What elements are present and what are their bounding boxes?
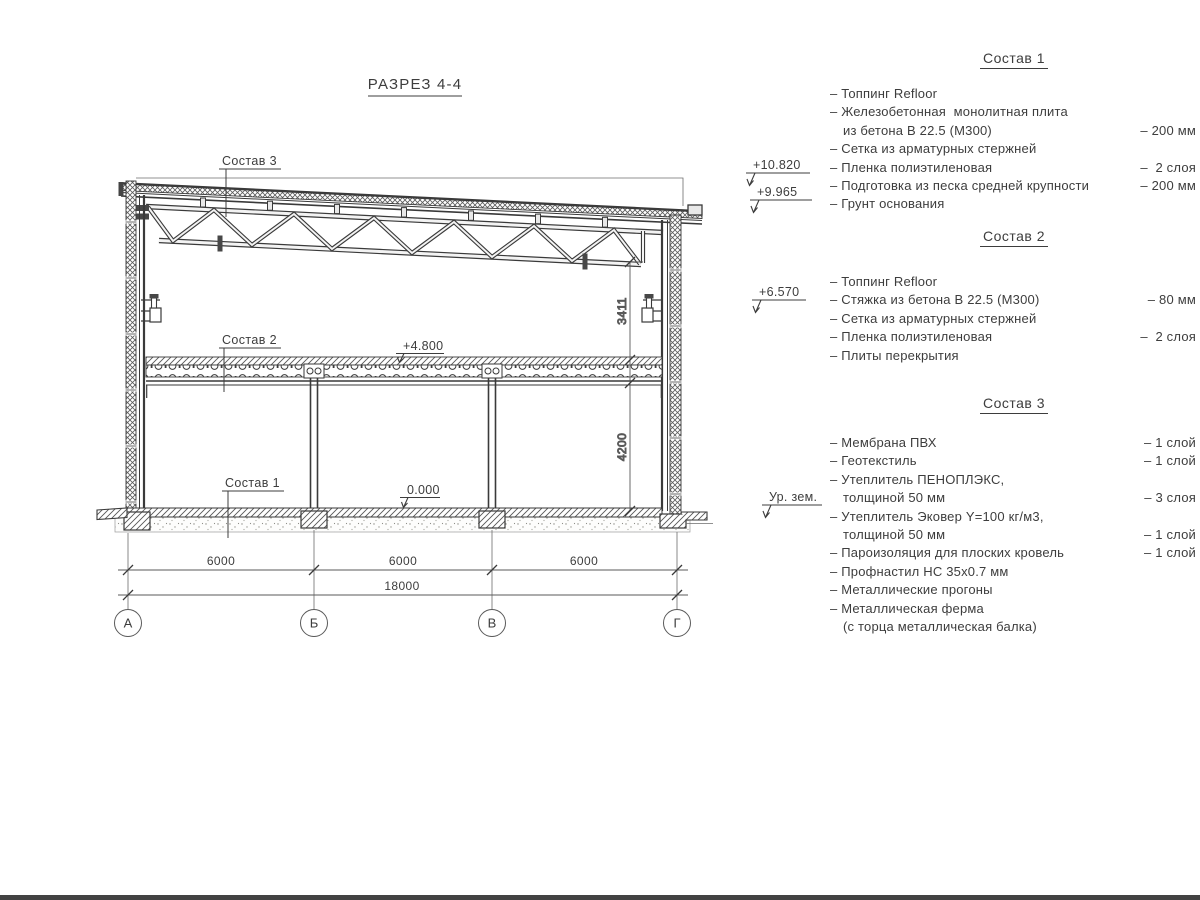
foundation-g [660, 514, 686, 528]
axis-label-b: Б [310, 616, 319, 631]
dim-total: 18000 [384, 579, 419, 593]
roof-right-end-beam [688, 205, 702, 215]
label-sostav-2-text: Состав 2 [222, 333, 277, 347]
item-text: – Топпинг Refloor [830, 273, 937, 291]
legend-item: – Геотекстиль– 1 слой [830, 452, 1198, 470]
window-bottom-edge [0, 895, 1200, 900]
hollow-core-slab-band [146, 365, 662, 377]
column-axis-v [482, 364, 502, 512]
legend-item: – Плиты перекрытия [830, 347, 1198, 365]
right-wall-panel [670, 215, 681, 518]
elevation-zero: 0.000 [400, 483, 440, 508]
item-text: – Топпинг Refloor [830, 85, 937, 103]
item-text: – Металлическая ферма [830, 600, 984, 618]
item-text: толщиной 50 мм [830, 526, 945, 544]
elevation-bracket: +6.570 [752, 285, 806, 313]
dim-span-1: 6000 [207, 554, 235, 568]
item-value: – 1 слой [1144, 544, 1198, 562]
legend-item: – Профнастил НС 35х0.7 мм [830, 563, 1198, 581]
sand-layer [115, 517, 690, 532]
item-text: – Грунт основания [830, 195, 945, 213]
left-apron [97, 508, 127, 520]
legend-item: (с торца металлическая балка) [830, 618, 1198, 636]
item-text: толщиной 50 мм [830, 489, 945, 507]
item-text: – Сетка из арматурных стержней [830, 140, 1036, 158]
legend-heading-2: Состав 2 [830, 228, 1198, 247]
item-text: – Пароизоляция для плоских кровель [830, 544, 1064, 562]
dim-span-2: 6000 [389, 554, 417, 568]
legend-heading-1: Состав 1 [830, 50, 1198, 69]
dimension-extension-lines [128, 530, 677, 609]
right-crane-bracket [642, 294, 662, 322]
drawing-sheet: РАЗРЕЗ 4-4 [0, 0, 1200, 900]
elevation-floor-text: +4.800 [403, 339, 443, 353]
legend-section-1: Состав 1 – Топпинг Refloor – Железобетон… [830, 50, 1198, 214]
axis-label-a: А [124, 616, 133, 631]
legend-item: – Топпинг Refloor [830, 85, 1198, 103]
legend-item: – Топпинг Refloor [830, 273, 1198, 291]
legend-item: – Стяжка из бетона В 22.5 (М300)– 80 мм [830, 291, 1198, 309]
item-value: – 1 слой [1144, 452, 1198, 470]
elevation-zero-text: 0.000 [407, 483, 440, 497]
interior-columns [304, 364, 502, 512]
dim-floor-height: 4200 [615, 433, 629, 461]
legend-heading-3: Состав 3 [830, 395, 1198, 414]
legend-section-3: Состав 3 – Мембрана ПВХ– 1 слой – Геотек… [830, 395, 1198, 636]
item-text: – Утеплитель Эковер Y=100 кг/м3, [830, 508, 1044, 526]
vertical-dimension: 3411 4200 [615, 257, 643, 516]
legend-item: – Грунт основания [830, 195, 1198, 213]
elevation-roof-low-text: +9.965 [757, 185, 797, 199]
legend-item: – Металлические прогоны [830, 581, 1198, 599]
legend-item: – Сетка из арматурных стержней [830, 310, 1198, 328]
elevation-ground-text: Ур. зем. [769, 490, 817, 504]
item-text: – Утеплитель ПЕНОПЛЭКС, [830, 471, 1004, 489]
drawing-title: РАЗРЕЗ 4-4 [368, 76, 463, 96]
foundation-a [124, 512, 150, 530]
item-text: – Пленка полиэтиленовая [830, 159, 992, 177]
item-text: – Подготовка из песка средней крупности [830, 177, 1089, 195]
item-text: – Металлические прогоны [830, 581, 993, 599]
item-value: – 80 мм [1148, 291, 1198, 309]
item-text: – Железобетонная монолитная плита [830, 103, 1068, 121]
elevation-roof-high: +10.820 [746, 158, 810, 186]
left-wall [126, 181, 162, 518]
legend-item: – Металлическая ферма [830, 600, 1198, 618]
item-value: – 1 слой [1144, 434, 1198, 452]
item-text: – Плиты перекрытия [830, 347, 959, 365]
left-wall-panel [126, 181, 136, 518]
ground-slab [127, 508, 662, 517]
ground-floor [97, 508, 713, 532]
legend-item: – Подготовка из песка средней крупности–… [830, 177, 1198, 195]
label-sostav-1-text: Состав 1 [225, 476, 280, 490]
foundation-b [301, 511, 327, 528]
legend-item: толщиной 50 мм– 3 слоя [830, 489, 1198, 507]
legend-item: – Железобетонная монолитная плита [830, 103, 1198, 121]
item-text: (с торца металлическая балка) [830, 618, 1037, 636]
floor-screed-band [146, 357, 662, 365]
dim-truss-height: 3411 [615, 297, 629, 324]
legend-item: – Утеплитель Эковер Y=100 кг/м3, [830, 508, 1198, 526]
legend-item: из бетона В 22.5 (М300)– 200 мм [830, 122, 1198, 140]
legend-item: – Пленка полиэтиленовая– 2 слоя [830, 328, 1198, 346]
legend-item: – Пленка полиэтиленовая– 2 слоя [830, 159, 1198, 177]
column-axis-b [304, 364, 324, 512]
elevation-ground: Ур. зем. [762, 490, 822, 518]
item-text: – Профнастил НС 35х0.7 мм [830, 563, 1009, 581]
label-sostav-3-text: Состав 3 [222, 154, 277, 168]
elevation-roof-low: +9.965 [750, 185, 812, 213]
elevation-bracket-text: +6.570 [759, 285, 799, 299]
item-text: – Мембрана ПВХ [830, 434, 937, 452]
legend-section-2: Состав 2 – Топпинг Refloor – Стяжка из б… [830, 228, 1198, 365]
axis-label-g: Г [673, 616, 680, 631]
page-title: РАЗРЕЗ 4-4 [368, 76, 463, 93]
axis-bubbles: А Б В Г [115, 610, 691, 637]
legend-item: – Мембрана ПВХ– 1 слой [830, 434, 1198, 452]
floor-slab [146, 357, 662, 398]
item-value: – 2 слоя [1140, 328, 1198, 346]
legend-item: – Пароизоляция для плоских кровель– 1 сл… [830, 544, 1198, 562]
item-value: – 200 мм [1140, 122, 1198, 140]
legend-item: – Сетка из арматурных стержней [830, 140, 1198, 158]
elevation-roof-high-text: +10.820 [753, 158, 801, 172]
foundation-v [479, 511, 505, 528]
legend-item: толщиной 50 мм– 1 слой [830, 526, 1198, 544]
item-text: – Сетка из арматурных стержней [830, 310, 1036, 328]
item-text: – Стяжка из бетона В 22.5 (М300) [830, 291, 1040, 309]
dim-span-3: 6000 [570, 554, 598, 568]
item-value: – 3 слоя [1144, 489, 1198, 507]
roof-left-end-plate [119, 182, 124, 196]
item-value: – 1 слой [1144, 526, 1198, 544]
axis-label-v: В [488, 616, 497, 631]
item-value: – 200 мм [1140, 177, 1198, 195]
bottom-dimensions: 6000 6000 6000 18000 [118, 530, 688, 609]
legend-item: – Утеплитель ПЕНОПЛЭКС, [830, 471, 1198, 489]
item-text: – Геотекстиль [830, 452, 917, 470]
item-text: – Пленка полиэтиленовая [830, 328, 992, 346]
item-text: из бетона В 22.5 (М300) [830, 122, 992, 140]
item-value: – 2 слоя [1140, 159, 1198, 177]
